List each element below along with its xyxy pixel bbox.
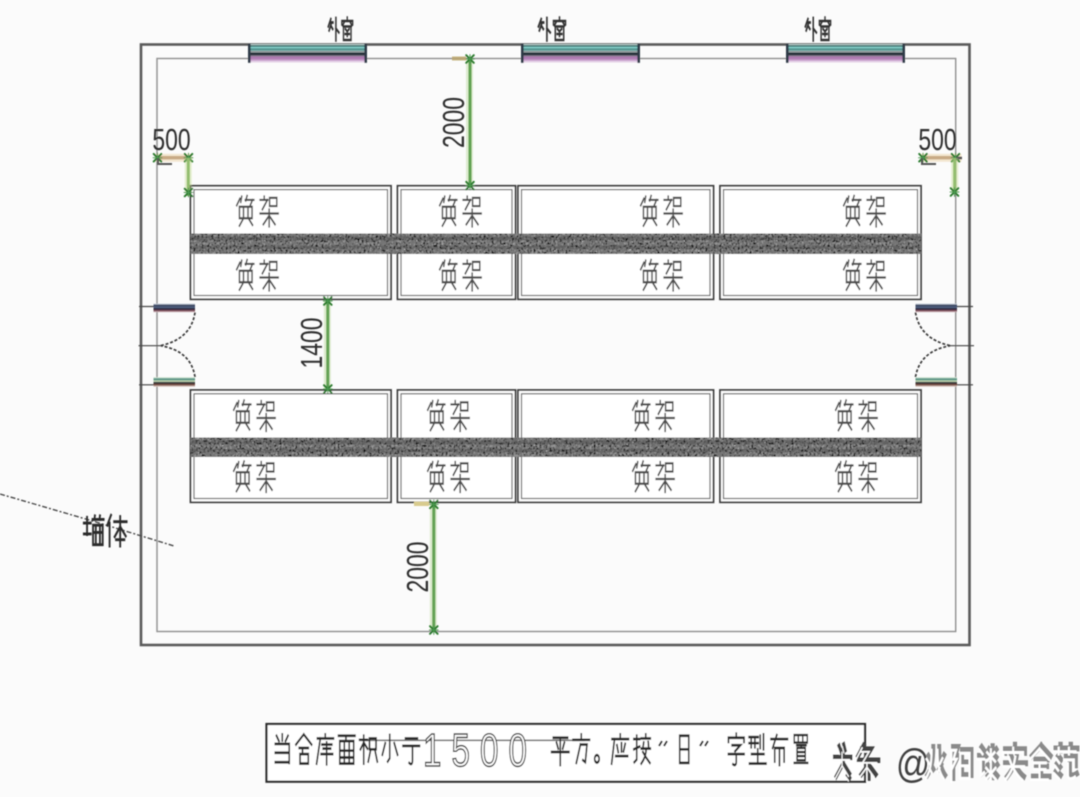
svg-text:1500: 1500 <box>423 726 537 776</box>
svg-text:500: 500 <box>918 122 956 157</box>
svg-text:2000: 2000 <box>400 542 435 593</box>
svg-text:500: 500 <box>152 122 190 157</box>
svg-text:1400: 1400 <box>294 318 329 369</box>
svg-text:2000: 2000 <box>436 97 471 148</box>
